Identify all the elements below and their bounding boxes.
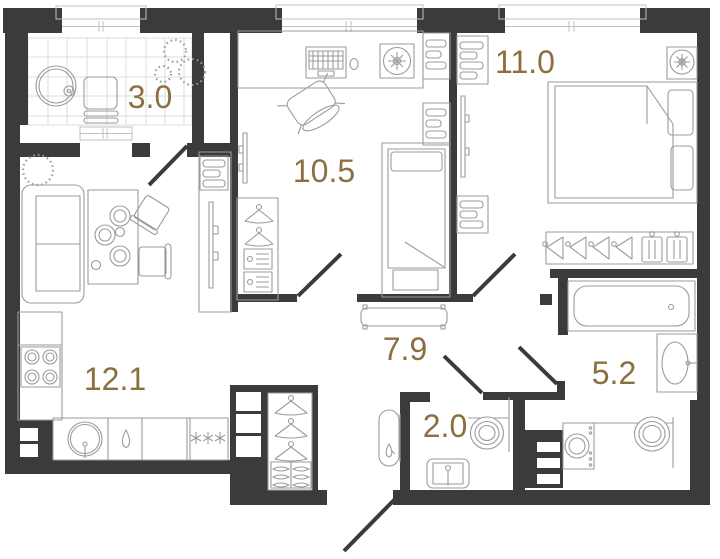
column-niche — [20, 444, 38, 457]
area-label-bedroom-large: 11.0 — [495, 44, 555, 80]
hand-sink-icon — [427, 459, 469, 488]
area-label-balcony: 3.0 — [128, 79, 172, 115]
freezer-stars-icon — [191, 432, 225, 444]
duct-shaft-slot — [537, 474, 560, 484]
shelf-niche — [236, 392, 261, 411]
duct-shaft-slot — [537, 458, 560, 468]
floor-plan-page: 3.0 10.5 11.0 12.1 7.9 2.0 5.2 — [0, 0, 720, 559]
floor-plan-drawing: 3.0 10.5 11.0 12.1 7.9 2.0 5.2 — [0, 0, 720, 559]
shelf-niche — [236, 414, 261, 433]
area-label-toilet: 2.0 — [423, 408, 467, 444]
area-label-bathroom: 5.2 — [592, 355, 636, 391]
background — [0, 0, 720, 559]
shelf-niche — [236, 436, 261, 457]
column-niche — [20, 428, 38, 441]
area-label-hallway: 7.9 — [383, 331, 427, 367]
toilet-icon — [635, 417, 670, 451]
area-label-bedroom-small: 10.5 — [293, 153, 355, 189]
area-label-kitchen-living: 12.1 — [84, 361, 146, 397]
duct-shaft-slot — [537, 442, 560, 452]
